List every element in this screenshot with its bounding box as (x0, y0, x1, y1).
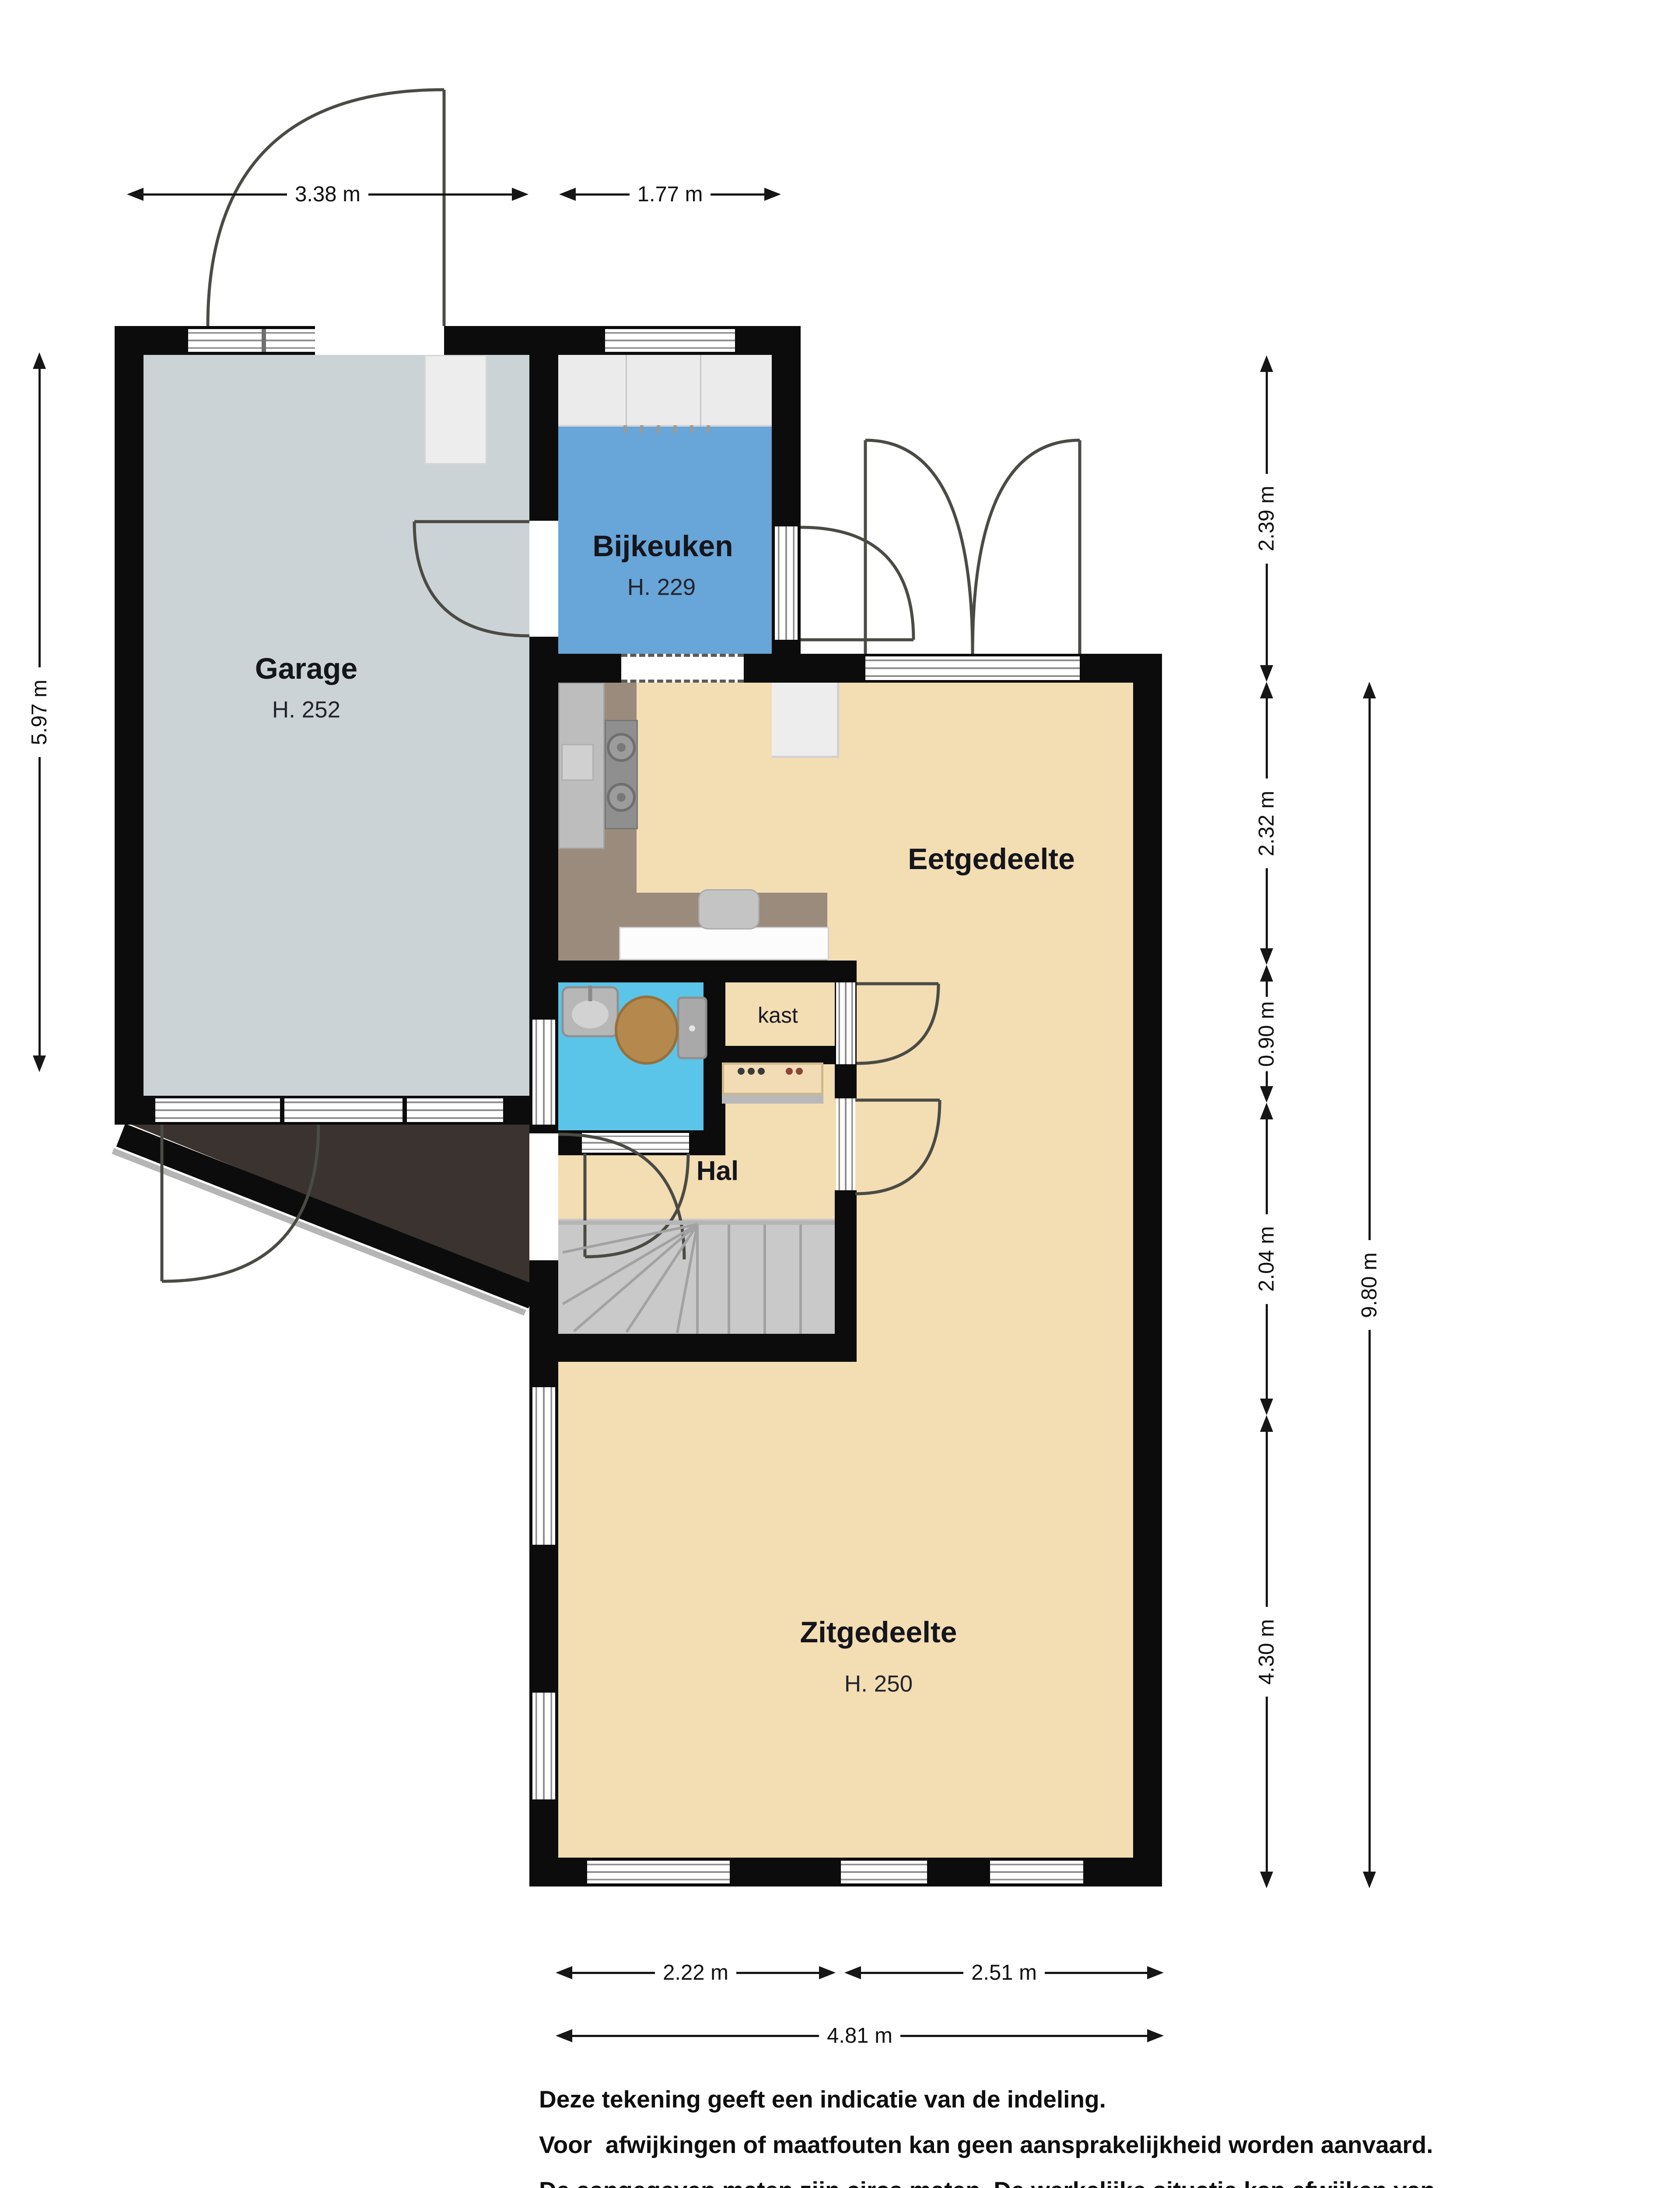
stairs-treads (558, 1223, 835, 1334)
dim-right-overall: 9.80 m (1355, 682, 1383, 1888)
kast-door-swing (857, 984, 938, 1063)
bijkeuken-label: Bijkeuken (592, 529, 733, 563)
garage-label: Garage (255, 652, 357, 686)
sink-icon (563, 985, 618, 1036)
dim-right-2: 2.32 m (1253, 682, 1281, 965)
french-door-right-swing (973, 440, 1080, 654)
dim-left-garage: 5.97 m (25, 352, 53, 1072)
arrow-up-icon (33, 352, 46, 369)
bijkeuken-back-door-swing (801, 527, 913, 640)
stove-burners-icon (608, 734, 634, 810)
arrow-left-icon (127, 188, 143, 201)
garage-garden-door-swing (208, 90, 444, 326)
bijkeuken-height-label: H. 229 (627, 574, 696, 601)
plan-overlay (0, 0, 1680, 2188)
garage-bijkeuken-door-swing (414, 522, 529, 636)
garage-height-label: H. 252 (272, 697, 340, 723)
dim-right-5: 4.30 m (1253, 1415, 1281, 1888)
hal-door-swing (855, 1100, 940, 1194)
hal-label: Hal (696, 1156, 738, 1187)
french-door-left-swing (865, 440, 973, 654)
dim-bottom-2: 2.51 m (844, 1960, 1164, 1986)
dim-top-bijkeuken: 1.77 m (559, 181, 781, 207)
dim-top-garage: 3.38 m (127, 181, 528, 207)
dim-right-3: 0.90 m (1253, 965, 1281, 1103)
arrow-left-icon (559, 188, 576, 201)
dim-right-1: 2.39 m (1253, 355, 1281, 682)
eetgedeelte-label: Eetgedeelte (908, 842, 1075, 876)
arrow-down-icon (33, 1055, 46, 1072)
wc-door-swing (585, 1154, 688, 1257)
dim-bottom-overall: 4.81 m (556, 2023, 1164, 2049)
disclaimer-line: De aangegeven maten zijn circa maten. De… (539, 2167, 1659, 2188)
disclaimer-line: Deze tekening geeft een indicatie van de… (539, 2076, 1659, 2122)
radiator-dots-icon (738, 1068, 803, 1075)
toilet-icon (616, 997, 706, 1063)
zitgedeelte-height-label: H. 250 (844, 1671, 913, 1697)
disclaimer-line: Voor afwijkingen of maatfouten kan geen … (539, 2122, 1659, 2167)
disclaimer: Deze tekening geeft een indicatie van de… (539, 2076, 1659, 2188)
dim-right-4: 2.04 m (1253, 1103, 1281, 1415)
zitgedeelte-label: Zitgedeelte (800, 1615, 957, 1649)
kast-label: kast (758, 1003, 798, 1028)
arrow-right-icon (512, 188, 528, 201)
arrow-right-icon (764, 188, 781, 201)
floorplan-canvas: Garage H. 252 Bijkeuken H. 229 Eetgedeel… (0, 0, 1680, 2188)
dim-bottom-1: 2.22 m (556, 1960, 836, 1986)
